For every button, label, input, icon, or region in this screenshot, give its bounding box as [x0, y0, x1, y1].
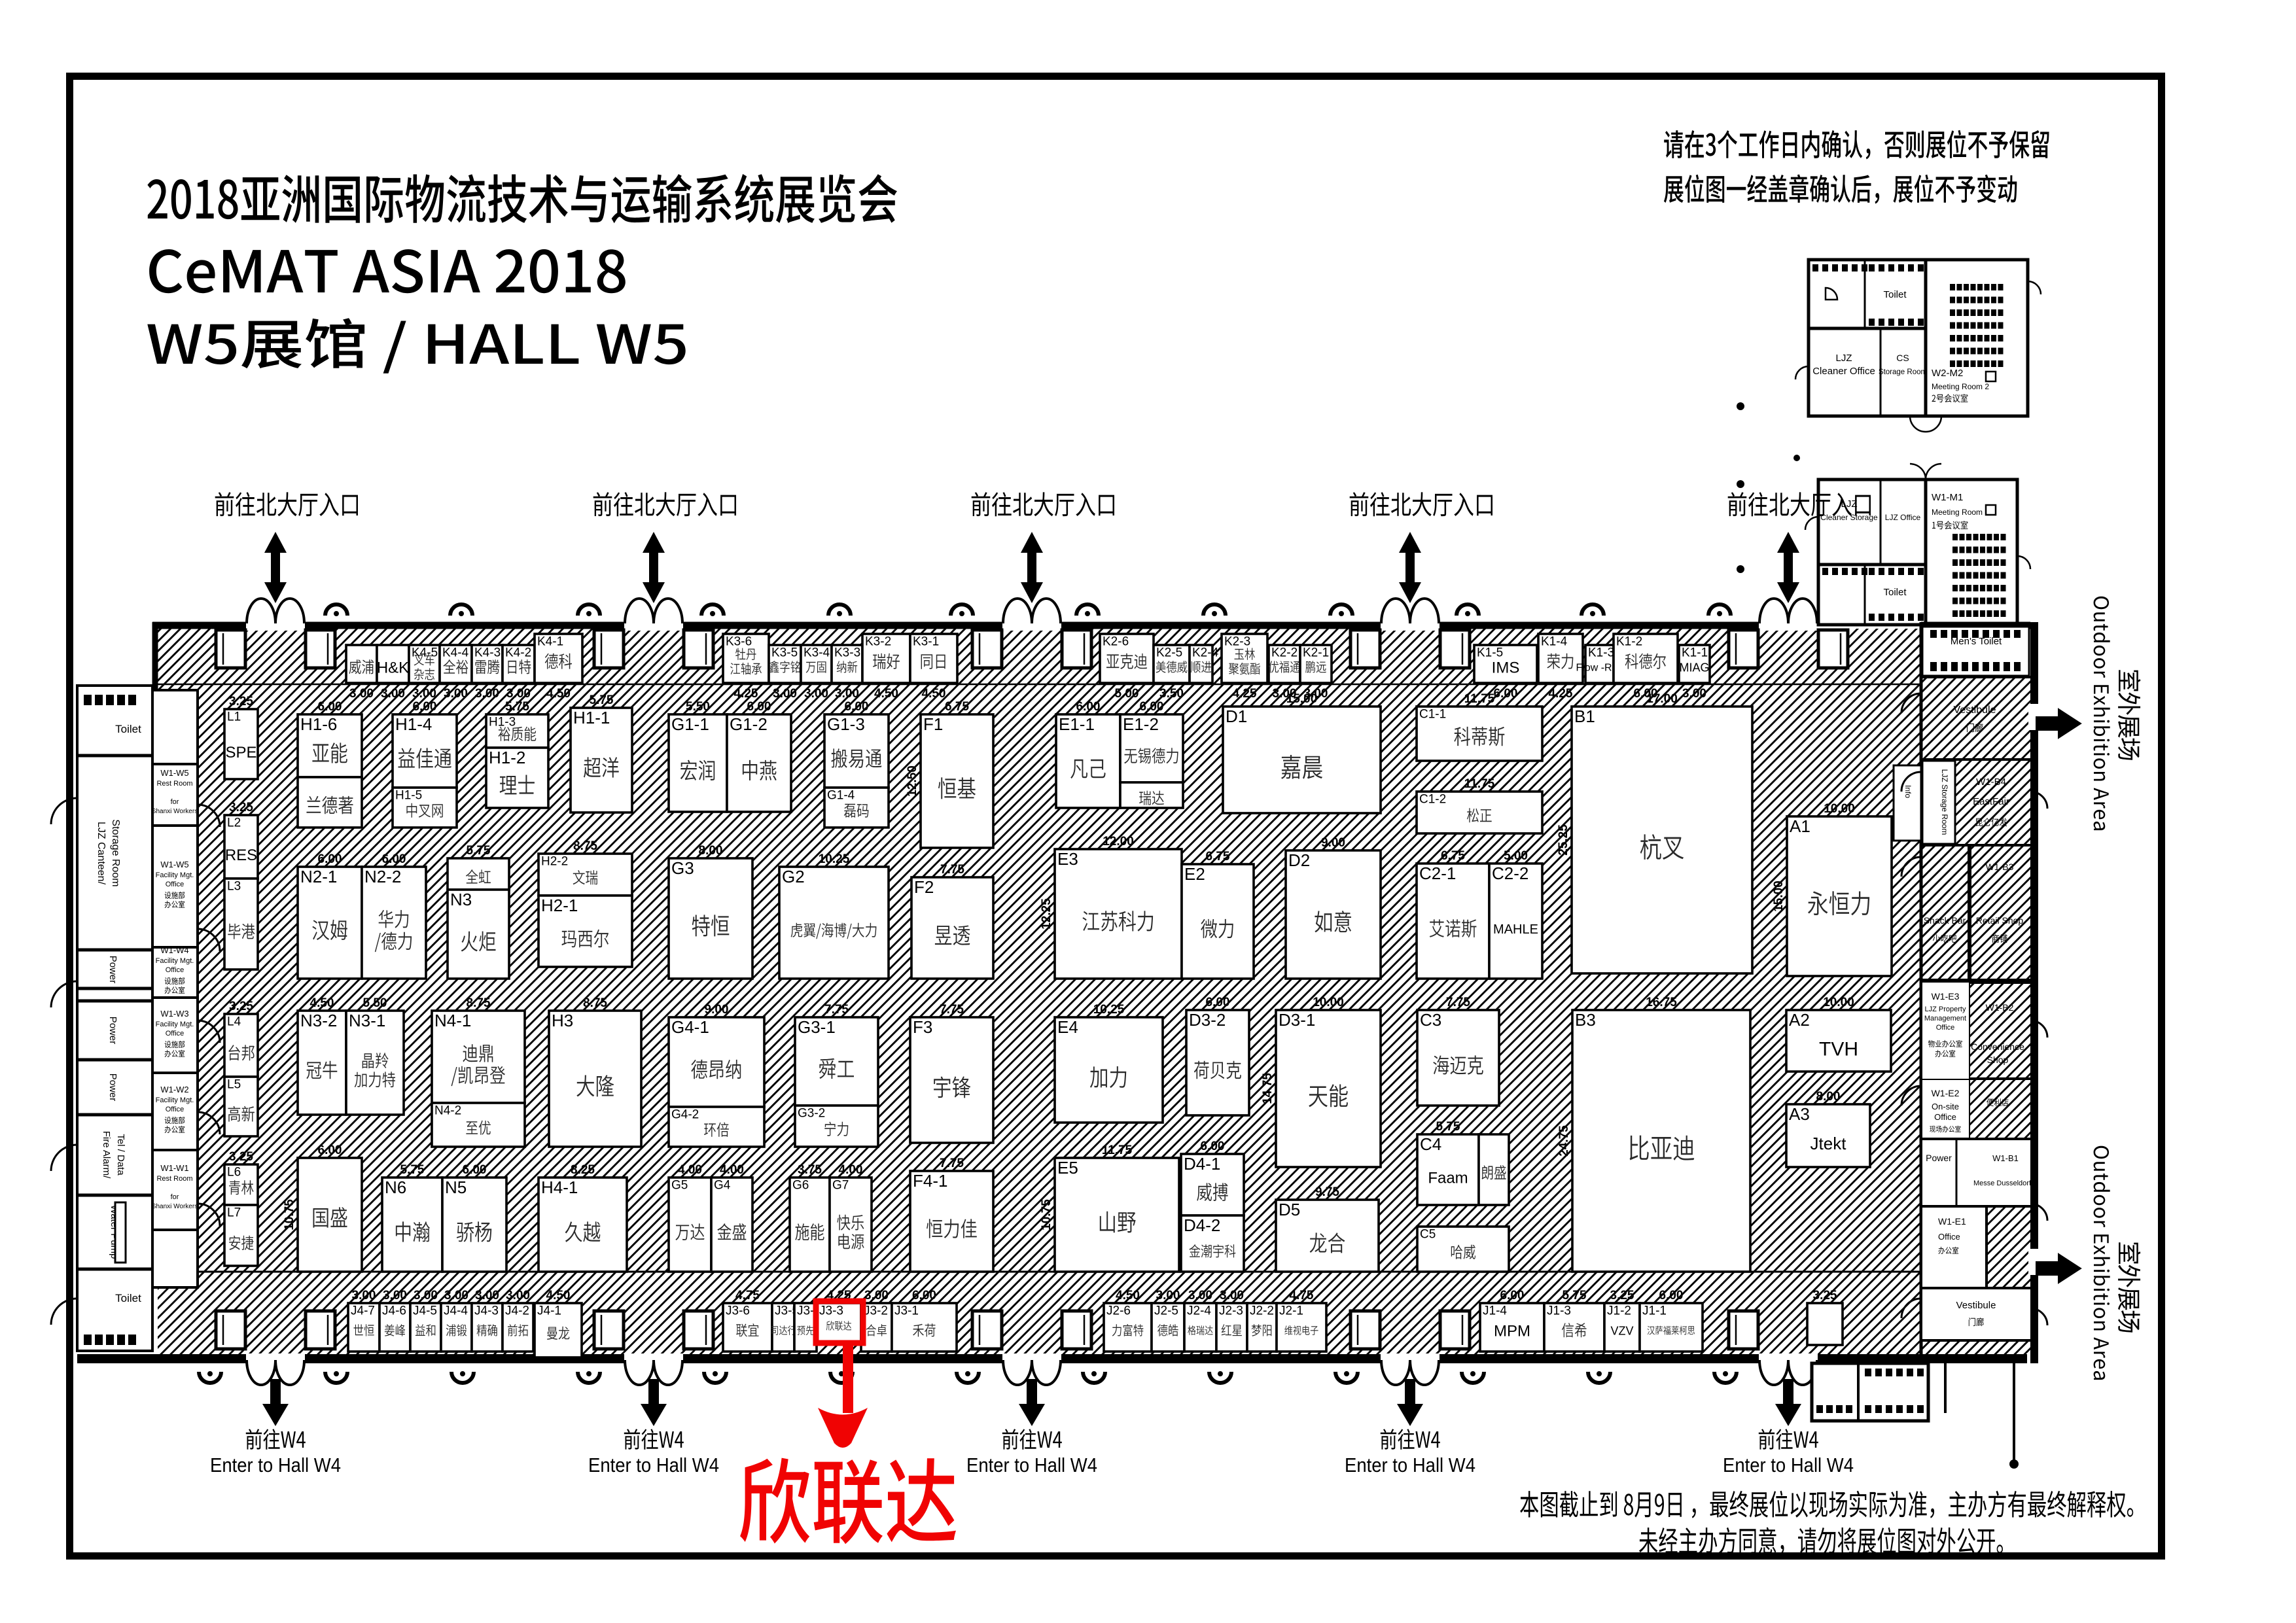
svg-text:CS: CS: [1896, 353, 1909, 363]
svg-text:E4: E4: [1057, 1017, 1078, 1037]
svg-text:J2-3: J2-3: [1219, 1304, 1243, 1318]
svg-text:W1-E1: W1-E1: [1938, 1216, 1966, 1227]
svg-text:C3: C3: [1420, 1010, 1441, 1030]
svg-text:Facility Mgt.: Facility Mgt.: [156, 871, 194, 879]
svg-text:G7: G7: [832, 1178, 849, 1192]
svg-text:5.75: 5.75: [1436, 1120, 1460, 1134]
svg-text:H1-2: H1-2: [489, 748, 525, 767]
svg-text:3.00: 3.00: [444, 687, 468, 701]
svg-text:3.00: 3.00: [864, 1289, 889, 1302]
svg-text:SPE: SPE: [225, 744, 256, 761]
svg-text:3.00: 3.00: [1682, 687, 1706, 701]
svg-text:D3-2: D3-2: [1189, 1010, 1226, 1030]
svg-text:8.00: 8.00: [699, 844, 723, 858]
svg-text:8.75: 8.75: [467, 996, 491, 1010]
svg-text:4.00: 4.00: [720, 1163, 744, 1177]
svg-text:K1-5: K1-5: [1477, 646, 1503, 659]
svg-text:Cleaner Office: Cleaner Office: [1812, 366, 1875, 377]
svg-text:6.00: 6.00: [1140, 700, 1164, 714]
svg-text:E1-1: E1-1: [1059, 714, 1095, 734]
svg-text:A3: A3: [1789, 1104, 1810, 1124]
svg-text:Enter to Hall W4: Enter to Hall W4: [1723, 1454, 1854, 1476]
svg-text:Office: Office: [1936, 1024, 1955, 1032]
svg-text:5.50: 5.50: [686, 700, 710, 714]
svg-text:W1-B3: W1-B3: [1986, 862, 2014, 872]
svg-text:3.00: 3.00: [1220, 1289, 1244, 1302]
svg-text:B3: B3: [1575, 1010, 1596, 1030]
svg-text:J2-1: J2-1: [1279, 1304, 1303, 1318]
svg-text:H1-1: H1-1: [573, 708, 610, 727]
svg-text:L5: L5: [227, 1077, 241, 1091]
svg-text:N3-2: N3-2: [300, 1011, 337, 1030]
svg-text:J3-6: J3-6: [726, 1304, 750, 1318]
svg-text:Meeting Room 2: Meeting Room 2: [1932, 382, 1989, 391]
svg-text:10.00: 10.00: [1313, 996, 1344, 1009]
svg-text:Meeting Room 1: Meeting Room 1: [1932, 508, 1989, 517]
svg-text:24.75: 24.75: [1557, 1125, 1571, 1157]
svg-text:8.00: 8.00: [1816, 1090, 1841, 1104]
svg-text:3.00: 3.00: [506, 687, 531, 701]
svg-text:10.00: 10.00: [1824, 802, 1855, 816]
svg-text:K2-6: K2-6: [1103, 635, 1129, 648]
svg-text:B1: B1: [1574, 707, 1595, 726]
svg-text:5.50: 5.50: [363, 996, 387, 1010]
svg-text:3.00: 3.00: [1304, 687, 1328, 701]
svg-text:J2-2: J2-2: [1250, 1304, 1274, 1318]
svg-text:4.50: 4.50: [874, 687, 898, 701]
svg-text:H2-2: H2-2: [541, 854, 568, 868]
svg-text:N2-1: N2-1: [300, 867, 337, 886]
svg-text:Facility Mgt.: Facility Mgt.: [156, 1021, 194, 1028]
svg-text:11.75: 11.75: [1464, 692, 1495, 706]
svg-text:8.75: 8.75: [583, 996, 607, 1010]
svg-text:N6: N6: [385, 1178, 406, 1197]
svg-text:for: for: [171, 1193, 179, 1201]
svg-text:3.00: 3.00: [1273, 687, 1297, 701]
svg-text:J3-1: J3-1: [894, 1304, 919, 1318]
svg-text:7.75: 7.75: [940, 1157, 964, 1170]
svg-text:3.00: 3.00: [506, 1289, 530, 1302]
svg-text:W1-W1: W1-W1: [160, 1163, 188, 1173]
svg-text:C2-1: C2-1: [1419, 864, 1456, 883]
svg-text:D4-1: D4-1: [1184, 1154, 1220, 1174]
svg-text:10.25: 10.25: [1093, 1003, 1125, 1017]
svg-text:N4-2: N4-2: [434, 1104, 461, 1117]
svg-text:6.00: 6.00: [463, 1163, 487, 1177]
svg-text:Management: Management: [1924, 1015, 1966, 1022]
svg-text:K2-5: K2-5: [1156, 646, 1182, 659]
svg-text:G4-2: G4-2: [671, 1108, 699, 1121]
svg-text:10.75: 10.75: [283, 1199, 296, 1230]
svg-text:Enter to Hall W4: Enter to Hall W4: [966, 1454, 1097, 1476]
svg-text:Jtekt: Jtekt: [1810, 1134, 1847, 1153]
svg-text:L6: L6: [227, 1165, 241, 1179]
svg-text:H4-1: H4-1: [541, 1178, 578, 1197]
svg-text:5.75: 5.75: [1563, 1289, 1587, 1302]
svg-text:F2: F2: [914, 877, 934, 897]
svg-text:H1-5: H1-5: [395, 788, 422, 802]
svg-text:Rest Room: Rest Room: [156, 780, 192, 788]
svg-text:IMS: IMS: [1492, 659, 1520, 676]
svg-text:K1-1: K1-1: [1682, 646, 1708, 659]
svg-text:H2-1: H2-1: [541, 896, 578, 915]
svg-text:W1-B2: W1-B2: [1986, 1002, 2014, 1013]
svg-text:6.00: 6.00: [413, 700, 437, 714]
svg-text:J1-2: J1-2: [1607, 1304, 1631, 1318]
svg-text:J2-6: J2-6: [1106, 1304, 1131, 1318]
svg-text:RES: RES: [225, 846, 257, 864]
svg-text:6.00: 6.00: [1634, 687, 1658, 701]
svg-text:E1-2: E1-2: [1123, 714, 1159, 734]
svg-text:7.75: 7.75: [824, 1003, 849, 1017]
svg-text:W1-E2: W1-E2: [1932, 1088, 1960, 1098]
svg-text:6.00: 6.00: [1494, 687, 1518, 701]
svg-text:6.00: 6.00: [318, 1143, 342, 1157]
svg-text:W1-E3: W1-E3: [1932, 991, 1960, 1002]
svg-text:K3-4: K3-4: [804, 646, 830, 659]
svg-text:TVH: TVH: [1819, 1039, 1858, 1060]
svg-text:H&K: H&K: [377, 659, 409, 676]
svg-text:K4-1: K4-1: [537, 635, 563, 648]
svg-text:LJZ Property: LJZ Property: [1925, 1005, 1966, 1013]
svg-text:Toilet: Toilet: [115, 1292, 141, 1304]
svg-text:4.75: 4.75: [735, 1289, 760, 1302]
svg-text:K2-2: K2-2: [1271, 646, 1298, 659]
svg-text:Info: Info: [1903, 785, 1913, 798]
svg-text:Tel / Data: Tel / Data: [115, 1134, 126, 1176]
svg-text:J1-1: J1-1: [1642, 1304, 1667, 1318]
svg-text:L4: L4: [227, 1015, 241, 1028]
svg-text:Toilet: Toilet: [1883, 289, 1907, 300]
svg-text:G6: G6: [792, 1178, 809, 1192]
svg-text:6.75: 6.75: [1206, 850, 1230, 864]
svg-text:F1: F1: [923, 714, 943, 734]
svg-text:7.75: 7.75: [940, 863, 964, 877]
svg-text:5.75: 5.75: [467, 844, 491, 858]
svg-text:3.00: 3.00: [773, 687, 797, 701]
svg-text:N4-1: N4-1: [434, 1011, 471, 1030]
svg-text:Convenience: Convenience: [1971, 1041, 2024, 1052]
svg-text:6.00: 6.00: [845, 700, 869, 714]
svg-text:D4-2: D4-2: [1184, 1215, 1220, 1235]
svg-text:W1-B4: W1-B4: [1976, 777, 2006, 788]
svg-text:Toilet: Toilet: [115, 723, 141, 735]
svg-text:G1-2: G1-2: [730, 714, 768, 734]
svg-text:K2-3: K2-3: [1224, 635, 1250, 648]
svg-text:K3-2: K3-2: [865, 635, 891, 648]
svg-text:3.25: 3.25: [229, 695, 253, 708]
svg-text:4.25: 4.25: [734, 687, 758, 701]
svg-text:K3-6: K3-6: [726, 635, 752, 648]
svg-text:N3-1: N3-1: [349, 1011, 385, 1030]
svg-text:4.75: 4.75: [1290, 1289, 1314, 1302]
svg-text:C2-2: C2-2: [1492, 864, 1528, 883]
svg-text:L7: L7: [227, 1206, 241, 1219]
svg-text:MAHLE: MAHLE: [1493, 922, 1538, 937]
svg-text:5.75: 5.75: [505, 700, 529, 714]
svg-text:Rest Room: Rest Room: [156, 1175, 192, 1183]
svg-text:D2: D2: [1288, 850, 1310, 870]
svg-text:J3-3: J3-3: [819, 1304, 843, 1318]
svg-text:D3-1: D3-1: [1279, 1010, 1315, 1030]
svg-text:Shop: Shop: [1987, 1055, 2009, 1065]
svg-text:MPM: MPM: [1494, 1322, 1530, 1340]
svg-text:4.50: 4.50: [310, 996, 334, 1010]
svg-text:J4-3: J4-3: [474, 1304, 499, 1318]
svg-text:10.75: 10.75: [1040, 1199, 1053, 1230]
svg-text:G3: G3: [671, 858, 694, 878]
svg-text:6.00: 6.00: [1201, 1140, 1225, 1153]
svg-text:Office: Office: [1934, 1112, 1956, 1122]
svg-text:Storage Room: Storage Room: [110, 819, 121, 886]
svg-text:C5: C5: [1420, 1227, 1436, 1241]
svg-text:3.00: 3.00: [444, 1289, 468, 1302]
svg-text:3.25: 3.25: [229, 801, 253, 814]
svg-text:K3-5: K3-5: [771, 646, 798, 659]
svg-text:G3-2: G3-2: [798, 1106, 825, 1120]
svg-text:3.25: 3.25: [229, 1000, 253, 1013]
svg-text:Power: Power: [1926, 1153, 1952, 1163]
svg-text:E5: E5: [1057, 1158, 1078, 1178]
svg-text:6.00: 6.00: [1076, 700, 1101, 714]
svg-text:3.00: 3.00: [383, 1289, 407, 1302]
svg-text:LJZ: LJZ: [1835, 353, 1852, 364]
svg-text:3.00: 3.00: [475, 687, 499, 701]
svg-text:Vestibule: Vestibule: [1954, 705, 1996, 716]
svg-text:Messe Dusseldorf: Messe Dusseldorf: [1973, 1179, 2032, 1187]
svg-text:E3: E3: [1057, 849, 1078, 869]
svg-text:G1-4: G1-4: [827, 788, 855, 802]
svg-text:W1-W3: W1-W3: [160, 1009, 188, 1019]
svg-text:25.25: 25.25: [1557, 824, 1570, 856]
svg-text:for: for: [171, 798, 179, 806]
svg-text:Vestibule: Vestibule: [1956, 1300, 1996, 1311]
svg-text:3.75: 3.75: [798, 1163, 822, 1177]
svg-text:L3: L3: [227, 879, 241, 893]
svg-text:Fire Alarm/: Fire Alarm/: [101, 1131, 112, 1179]
svg-text:K1-2: K1-2: [1616, 635, 1642, 648]
svg-text:8.25: 8.25: [571, 1163, 595, 1177]
svg-text:5.00: 5.00: [1504, 849, 1528, 863]
svg-text:J4-6: J4-6: [382, 1304, 406, 1318]
svg-text:3.50: 3.50: [1159, 687, 1184, 701]
svg-text:4.00: 4.00: [839, 1163, 863, 1177]
svg-text:J1-4: J1-4: [1483, 1304, 1507, 1318]
svg-text:LJZ Canteen/: LJZ Canteen/: [96, 822, 107, 885]
svg-text:K4-2: K4-2: [505, 646, 531, 659]
svg-text:W1-M1: W1-M1: [1932, 492, 1963, 503]
svg-text:9.00: 9.00: [705, 1003, 729, 1017]
svg-text:4.00: 4.00: [678, 1163, 702, 1177]
svg-text:4.25: 4.25: [1233, 687, 1257, 701]
svg-text:Enter to Hall W4: Enter to Hall W4: [1345, 1454, 1475, 1476]
svg-text:L1: L1: [227, 710, 241, 724]
svg-text:6.00: 6.00: [747, 700, 771, 714]
svg-text:K1-4: K1-4: [1541, 635, 1568, 648]
svg-text:C4: C4: [1420, 1134, 1441, 1154]
svg-text:H3: H3: [552, 1011, 573, 1030]
svg-text:3.00: 3.00: [352, 1289, 376, 1302]
svg-text:Enter to Hall W4: Enter to Hall W4: [210, 1454, 341, 1476]
svg-text:LJZ Storage Room: LJZ Storage Room: [1940, 769, 1949, 835]
svg-text:EastFair: EastFair: [1973, 796, 2009, 807]
svg-text:F3: F3: [913, 1017, 932, 1037]
svg-text:3.00: 3.00: [349, 687, 374, 701]
svg-text:G5: G5: [671, 1178, 688, 1192]
svg-text:Storage Room: Storage Room: [1879, 368, 1927, 376]
svg-text:10.00: 10.00: [1823, 996, 1854, 1009]
svg-text:Retail Shop: Retail Shop: [1976, 915, 2024, 926]
svg-text:MIAG: MIAG: [1679, 661, 1709, 674]
svg-text:J4-1: J4-1: [537, 1304, 561, 1318]
svg-text:D5: D5: [1279, 1200, 1300, 1219]
svg-text:K4-3: K4-3: [474, 646, 501, 659]
svg-text:12.50: 12.50: [906, 765, 919, 797]
svg-text:K1-3: K1-3: [1588, 646, 1614, 659]
svg-text:9.00: 9.00: [1321, 836, 1345, 850]
svg-text:W1-W2: W1-W2: [160, 1085, 188, 1094]
svg-text:4.25: 4.25: [1549, 687, 1573, 701]
svg-text:Faam: Faam: [1428, 1169, 1468, 1187]
svg-text:Shanxi Workers: Shanxi Workers: [152, 808, 198, 815]
svg-text:14.75: 14.75: [1261, 1073, 1275, 1104]
svg-text:J4-7: J4-7: [351, 1304, 375, 1318]
svg-text:5.75: 5.75: [400, 1163, 425, 1177]
svg-text:9.75: 9.75: [1315, 1185, 1339, 1199]
svg-text:N3: N3: [450, 890, 472, 909]
svg-text:3.00: 3.00: [475, 1289, 499, 1302]
svg-text:G4-1: G4-1: [671, 1017, 709, 1037]
svg-text:C1-1: C1-1: [1419, 707, 1446, 721]
svg-text:3.00: 3.00: [804, 687, 828, 701]
svg-text:N2-2: N2-2: [364, 867, 401, 886]
svg-text:K2-4: K2-4: [1192, 646, 1219, 659]
svg-text:N5: N5: [445, 1178, 467, 1197]
svg-text:J3-2: J3-2: [864, 1304, 888, 1318]
svg-text:On-site: On-site: [1932, 1102, 1959, 1111]
svg-text:6.00: 6.00: [1500, 1289, 1525, 1302]
svg-text:3.25: 3.25: [1813, 1289, 1837, 1302]
svg-text:3.00: 3.00: [835, 687, 859, 701]
svg-text:Power: Power: [107, 956, 118, 984]
svg-text:12.25: 12.25: [1040, 898, 1053, 930]
svg-text:5.75: 5.75: [590, 693, 614, 707]
svg-text:D1: D1: [1226, 707, 1247, 726]
svg-text:J4-4: J4-4: [444, 1304, 468, 1318]
svg-text:12.00: 12.00: [1103, 835, 1134, 848]
svg-text:Power: Power: [107, 1073, 118, 1102]
svg-text:H1-6: H1-6: [300, 714, 337, 734]
svg-text:6.75: 6.75: [945, 700, 969, 714]
svg-text:3.25: 3.25: [229, 1150, 253, 1164]
svg-text:3.00: 3.00: [414, 1289, 438, 1302]
svg-text:11.75: 11.75: [1464, 777, 1495, 791]
svg-text:A1: A1: [1790, 816, 1810, 836]
svg-text:Office: Office: [166, 1106, 185, 1113]
svg-text:W1-W4: W1-W4: [160, 945, 188, 955]
svg-text:8.75: 8.75: [573, 839, 597, 853]
svg-text:W2-M2: W2-M2: [1932, 368, 1963, 379]
svg-text:K4-4: K4-4: [442, 646, 469, 659]
svg-text:H1-3: H1-3: [489, 715, 516, 729]
svg-text:4.50: 4.50: [1116, 1289, 1140, 1302]
svg-text:J2-4: J2-4: [1187, 1304, 1211, 1318]
svg-text:K3-3: K3-3: [834, 646, 860, 659]
svg-text:11.75: 11.75: [1102, 1143, 1133, 1157]
svg-text:Snack Bar: Snack Bar: [1924, 915, 1966, 926]
svg-text:3.00: 3.00: [412, 687, 436, 701]
svg-text:7.75: 7.75: [1446, 996, 1470, 1009]
svg-text:Shanxi Workers: Shanxi Workers: [152, 1203, 198, 1210]
svg-text:G1-3: G1-3: [827, 714, 865, 734]
svg-text:6.00: 6.00: [318, 700, 342, 714]
svg-text:6.75: 6.75: [1441, 849, 1465, 863]
svg-text:W1-W5: W1-W5: [160, 860, 188, 869]
svg-text:Office: Office: [166, 966, 185, 974]
svg-text:15.00: 15.00: [1772, 881, 1786, 912]
svg-text:W1-B1: W1-B1: [1992, 1153, 2019, 1163]
svg-text:Power: Power: [107, 1017, 118, 1045]
svg-text:J4-5: J4-5: [413, 1304, 437, 1318]
svg-text:J1-3: J1-3: [1547, 1304, 1571, 1318]
svg-text:5.00: 5.00: [1115, 687, 1139, 701]
svg-text:Facility Mgt.: Facility Mgt.: [156, 957, 194, 965]
svg-text:K3-1: K3-1: [913, 635, 939, 648]
svg-text:6.00: 6.00: [1206, 996, 1230, 1009]
svg-text:G4: G4: [714, 1178, 731, 1192]
svg-text:3.25: 3.25: [1610, 1289, 1634, 1302]
svg-text:6.00: 6.00: [318, 852, 342, 866]
svg-text:6.00: 6.00: [1659, 1289, 1684, 1302]
svg-text:A2: A2: [1789, 1010, 1810, 1030]
svg-text:4.50: 4.50: [546, 687, 571, 701]
svg-text:C1-2: C1-2: [1419, 792, 1446, 806]
svg-text:6.00: 6.00: [912, 1289, 936, 1302]
svg-text:Office: Office: [1938, 1232, 1960, 1242]
svg-text:VZV: VZV: [1610, 1324, 1633, 1337]
svg-text:L2: L2: [227, 816, 241, 829]
svg-text:H1-4: H1-4: [395, 714, 432, 734]
svg-text:LJZ Office: LJZ Office: [1885, 513, 1921, 522]
svg-text:F4-1: F4-1: [913, 1171, 947, 1191]
svg-text:4.50: 4.50: [546, 1289, 571, 1302]
svg-text:G2: G2: [782, 867, 805, 886]
svg-text:Toilet: Toilet: [1883, 587, 1907, 598]
svg-text:6.00: 6.00: [382, 852, 406, 866]
svg-text:Facility Mgt.: Facility Mgt.: [156, 1096, 194, 1104]
svg-text:4.50: 4.50: [922, 687, 946, 701]
svg-text:E2: E2: [1184, 864, 1205, 884]
svg-text:W1-W5: W1-W5: [160, 768, 188, 778]
svg-text:K4-5: K4-5: [412, 646, 438, 659]
svg-text:3.00: 3.00: [1156, 1289, 1180, 1302]
svg-text:G1-1: G1-1: [671, 714, 709, 734]
svg-text:Office: Office: [166, 881, 185, 888]
svg-text:10.25: 10.25: [819, 852, 850, 866]
svg-text:G3-1: G3-1: [798, 1017, 836, 1037]
svg-text:3.00: 3.00: [1188, 1289, 1212, 1302]
svg-text:K2-1: K2-1: [1303, 646, 1329, 659]
svg-text:Enter to Hall W4: Enter to Hall W4: [588, 1454, 719, 1476]
svg-text:Office: Office: [166, 1030, 185, 1038]
svg-text:J4-2: J4-2: [505, 1304, 529, 1318]
svg-text:7.75: 7.75: [940, 1003, 964, 1017]
svg-text:3.00: 3.00: [381, 687, 405, 701]
svg-text:J2-5: J2-5: [1154, 1304, 1178, 1318]
svg-text:16.75: 16.75: [1646, 996, 1677, 1009]
